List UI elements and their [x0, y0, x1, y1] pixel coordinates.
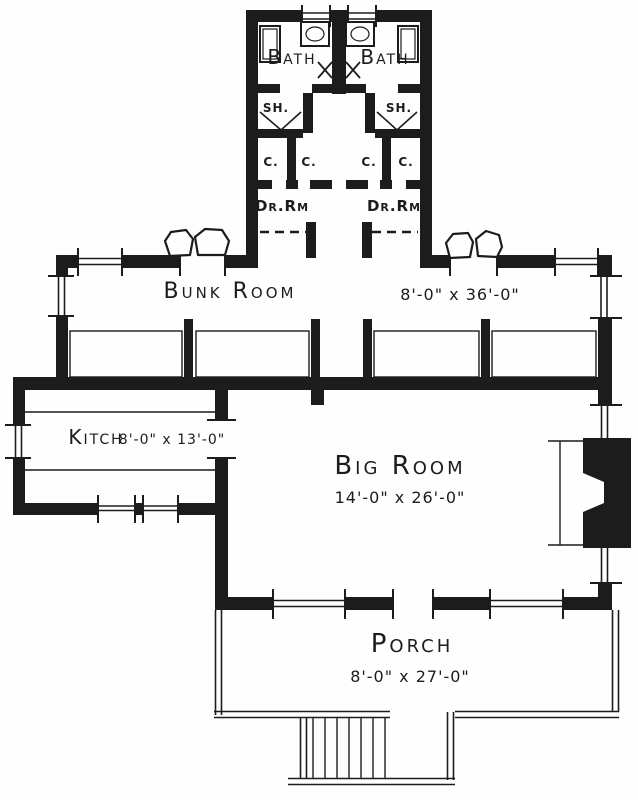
porch-dimensions: 8'-0" x 27'-0"	[350, 667, 470, 686]
kitchen-dimensions: 8'-0" x 13'-0"	[119, 432, 225, 448]
porch-label: Porch	[371, 629, 454, 659]
big-room-windows	[273, 405, 622, 619]
kitchen-walls	[13, 390, 228, 610]
floor-plan-drawing: Bath Bath SH. SH. C. C. C. C. Dr.Rm Dr.R…	[0, 0, 638, 800]
fireplace	[583, 438, 631, 548]
porch-steps	[288, 712, 455, 785]
big-room-dimensions: 14'-0" x 26'-0"	[335, 488, 466, 507]
porch-outline	[214, 610, 619, 718]
bunk-room-dimensions: 8'-0" x 36'-0"	[400, 285, 520, 304]
dressing-room-left-label: Dr.Rm	[255, 197, 309, 215]
kitchen-label: Kitch	[68, 425, 123, 449]
bunk-beds	[70, 331, 596, 377]
fireplace-dimension-line	[548, 441, 584, 545]
bath-left-label: Bath	[267, 45, 316, 69]
shower-left-label: SH.	[263, 101, 289, 115]
right-entry-stepping-stones	[446, 231, 502, 258]
left-bath-sink	[301, 22, 329, 46]
big-room-label: Big Room	[334, 451, 465, 481]
closet-label-4: C.	[398, 155, 413, 169]
right-bath-sink	[346, 22, 374, 46]
dressing-room-right-label: Dr.Rm	[367, 197, 421, 215]
closet-label-2: C.	[301, 155, 316, 169]
shower-right-label: SH.	[386, 101, 412, 115]
floor-plan-page: Bath Bath SH. SH. C. C. C. C. Dr.Rm Dr.R…	[0, 0, 638, 800]
bunk-room-walls	[13, 255, 612, 405]
bunk-room-label: Bunk Room	[164, 279, 297, 304]
bath-right-label: Bath	[360, 45, 409, 69]
left-entry-stepping-stones	[165, 229, 229, 256]
closet-label-1: C.	[263, 155, 278, 169]
closet-label-3: C.	[361, 155, 376, 169]
